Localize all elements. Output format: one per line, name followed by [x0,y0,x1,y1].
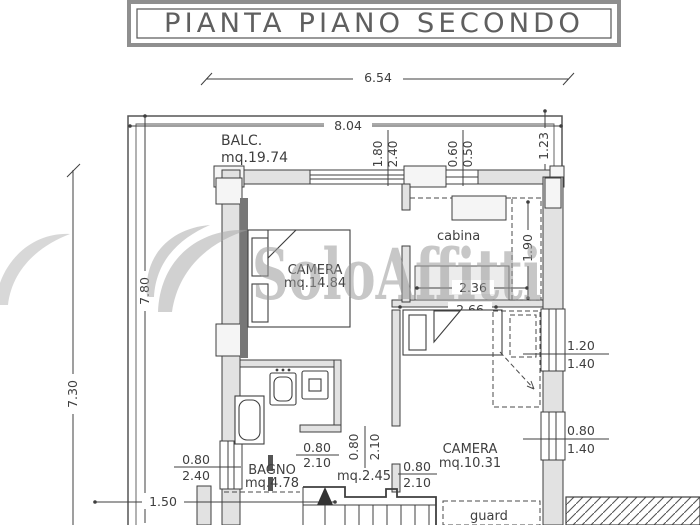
door-hall-h: 2.10 [368,434,382,461]
win-right-down-w: 0.80 [567,423,595,438]
dim-left-outer-height-label: 7.30 [65,380,80,408]
dim-balcony-depth-label: 1.23 [536,132,551,160]
door-camera2-w: 0.80 [403,459,431,474]
win-top-small-h: 0.50 [461,141,475,168]
door-camera2-h: 2.10 [403,475,431,490]
win-left-w: 0.80 [182,452,210,467]
win-top-large-h: 2.40 [386,141,400,168]
bagno-area: mq.4.78 [245,476,299,491]
dim-total-width-label: 6.54 [364,70,392,85]
guardaroba-label: guard [470,509,508,524]
dark-wall-strip [240,198,248,358]
win-top-large-w: 1.80 [371,141,385,168]
balcony-area: mq.19.74 [221,150,288,166]
dim-balcony-width-label: 8.04 [334,118,362,133]
win-right-up-h: 1.40 [567,356,595,371]
camera2-area: mq.10.31 [439,456,501,471]
hall-area: mq.2.45 [337,469,391,484]
win-right-down-h: 1.40 [567,441,595,456]
title-box: PIANTA PIANO SECONDO [129,2,619,45]
win-left-h: 2.40 [182,468,210,483]
dim-bottom-left-label: 1.50 [149,494,177,509]
hatched-section [566,497,700,525]
floor-plan-drawing: PIANTA PIANO SECONDO 6.54 8.04 BALC. mq.… [0,0,700,525]
win-right-up-w: 1.20 [567,338,595,353]
camera2-name: CAMERA [443,442,498,457]
balcony-name: BALC. [221,133,262,149]
door-hall-w: 0.80 [347,434,361,461]
camera2-bed [403,310,502,355]
door-bagno-h: 2.10 [303,455,331,470]
plan-title: PIANTA PIANO SECONDO [164,8,584,39]
floor-plan-page: PIANTA PIANO SECONDO 6.54 8.04 BALC. mq.… [0,0,700,525]
watermark-text: SoloAffitti [252,233,542,316]
door-bagno-w: 0.80 [303,440,331,455]
win-top-small-w: 0.60 [446,141,460,168]
